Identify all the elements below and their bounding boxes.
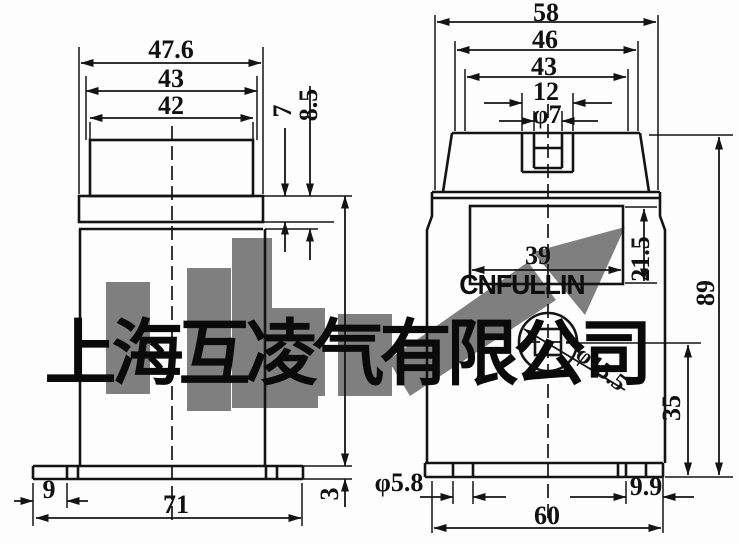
- dim-front-plate-thickness: 7: [270, 105, 296, 118]
- dim-front-slot-offset: 9: [43, 477, 56, 503]
- dim-front-base-thickness: 3: [317, 488, 343, 501]
- dim-front-head-width: 42: [158, 93, 184, 119]
- dim-front-overall-width: 47.6: [148, 37, 194, 63]
- dim-side-slot-dia: φ5.8: [375, 470, 424, 496]
- dim-side-window-width: 39: [525, 243, 551, 269]
- dim-side-hole-center-height: 35: [659, 395, 685, 421]
- dim-side-slot-offset: 9.9: [630, 474, 663, 500]
- dim-side-overall-height: 89: [693, 280, 719, 306]
- dim-side-window-height: 21.5: [628, 236, 654, 282]
- dimension-lines: [14, 22, 719, 528]
- dim-side-base-width: 60: [534, 503, 560, 529]
- dim-side-head-top-width: 46: [532, 27, 558, 53]
- dim-front-lid-width: 43: [158, 66, 184, 92]
- dim-front-base-width: 71: [163, 492, 189, 518]
- dim-front-plate-total: 8.5: [296, 89, 322, 122]
- dim-side-terminal-hole: φ7: [532, 102, 561, 128]
- technical-drawing-canvas: 47.6 43 42 7 8.5 9 71 3 58 46 43 12 φ7 3…: [0, 0, 739, 544]
- dim-side-overall-width: 58: [533, 0, 559, 26]
- company-watermark: 上海互凌气有限公司: [44, 295, 647, 400]
